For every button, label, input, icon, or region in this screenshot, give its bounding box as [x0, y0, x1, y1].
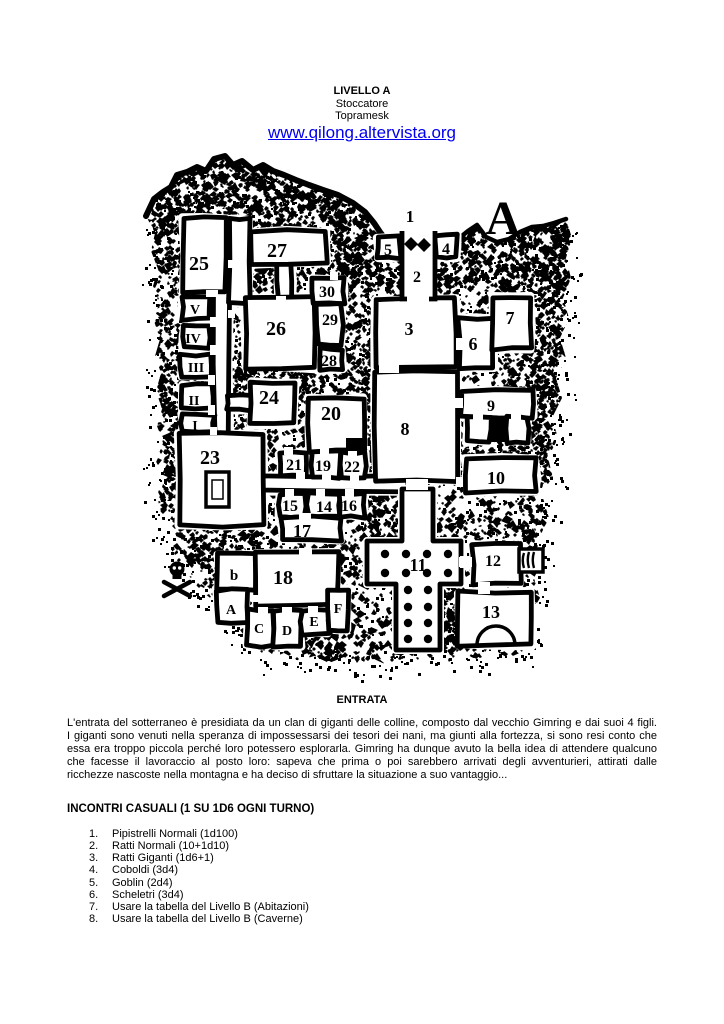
svg-text:10: 10	[487, 468, 505, 488]
svg-text:b: b	[230, 568, 238, 584]
svg-text:2: 2	[413, 269, 421, 286]
svg-text:A: A	[226, 603, 237, 618]
svg-text:3: 3	[405, 319, 414, 339]
svg-text:IV: IV	[185, 332, 201, 347]
svg-text:C: C	[254, 622, 264, 637]
svg-text:21: 21	[286, 457, 302, 474]
svg-text:4: 4	[442, 241, 450, 258]
svg-text:7: 7	[506, 308, 515, 328]
svg-text:18: 18	[273, 567, 293, 589]
svg-text:E: E	[309, 615, 318, 630]
svg-text:9: 9	[487, 398, 495, 415]
svg-text:26: 26	[266, 318, 286, 340]
svg-text:A: A	[486, 192, 521, 245]
svg-text:13: 13	[482, 602, 500, 622]
svg-text:22: 22	[344, 459, 360, 476]
svg-text:F: F	[334, 602, 343, 617]
svg-text:29: 29	[322, 312, 338, 329]
svg-text:III: III	[188, 361, 204, 376]
svg-text:15: 15	[282, 498, 298, 515]
svg-text:23: 23	[200, 447, 220, 469]
svg-text:D: D	[282, 624, 292, 639]
svg-text:25: 25	[189, 253, 209, 275]
svg-text:16: 16	[341, 498, 357, 515]
svg-text:17: 17	[293, 521, 311, 541]
svg-text:28: 28	[321, 353, 337, 370]
svg-text:V: V	[190, 303, 200, 318]
svg-text:II: II	[189, 394, 200, 409]
svg-text:12: 12	[485, 553, 501, 570]
svg-text:24: 24	[259, 387, 279, 409]
svg-text:30: 30	[319, 284, 335, 301]
svg-text:6: 6	[469, 334, 478, 354]
svg-text:8: 8	[401, 419, 410, 439]
svg-text:5: 5	[384, 242, 392, 259]
svg-text:14: 14	[316, 499, 332, 516]
svg-text:19: 19	[315, 458, 331, 475]
svg-text:27: 27	[267, 240, 287, 262]
svg-text:20: 20	[321, 403, 341, 425]
svg-text:1: 1	[406, 207, 415, 226]
svg-text:I: I	[192, 419, 197, 434]
